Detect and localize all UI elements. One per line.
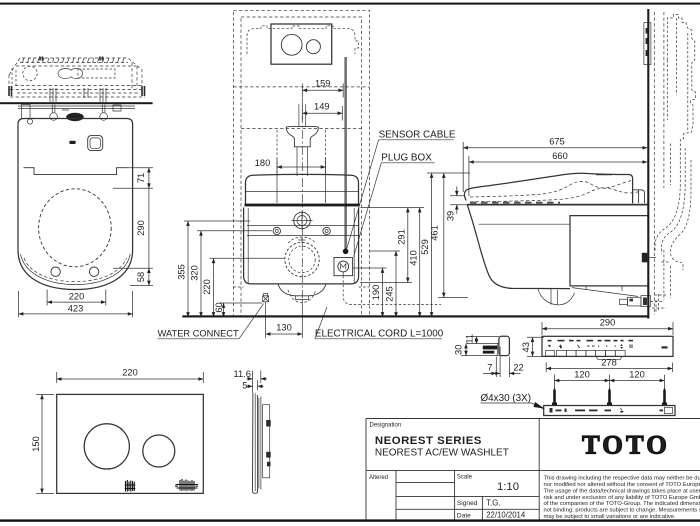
svg-text:Signed: Signed (457, 500, 478, 507)
svg-text:ELECTRICAL CORD L=1000: ELECTRICAL CORD L=1000 (315, 329, 444, 340)
svg-text:290: 290 (600, 318, 616, 328)
svg-text:180: 180 (255, 158, 271, 168)
svg-text:PLUG BOX: PLUG BOX (381, 152, 432, 163)
svg-text:of the companies of the TOTO-G: of the companies of the TOTO-Group. The … (544, 501, 700, 507)
svg-text:nor modified nor altered witho: nor modified nor altered without the con… (544, 482, 700, 488)
svg-text:220: 220 (122, 368, 138, 378)
svg-text:423: 423 (68, 303, 84, 313)
svg-text:22/10/2014: 22/10/2014 (486, 511, 526, 520)
svg-text:TOTO: TOTO (582, 430, 670, 460)
svg-text:60: 60 (214, 302, 224, 312)
svg-text:The usage of the data/technica: The usage of the data/technical drawings… (544, 488, 700, 494)
svg-text:5: 5 (242, 381, 247, 391)
svg-text:Altered: Altered (369, 475, 388, 481)
svg-text:58: 58 (136, 272, 146, 282)
svg-text:11: 11 (464, 334, 474, 344)
svg-text:43: 43 (521, 342, 531, 352)
svg-text:120: 120 (574, 370, 590, 380)
svg-text:Designation: Designation (370, 423, 402, 429)
svg-text:150: 150 (31, 436, 41, 452)
svg-text:Date: Date (457, 512, 471, 519)
svg-text:not binding; products are subj: not binding; products are subject to cha… (544, 508, 700, 514)
svg-text:Scale: Scale (457, 474, 473, 480)
svg-text:190: 190 (371, 285, 381, 301)
svg-text:461: 461 (430, 225, 440, 241)
svg-text:30: 30 (454, 345, 464, 355)
svg-text:410: 410 (408, 250, 418, 266)
svg-text:220: 220 (69, 291, 85, 301)
svg-text:71: 71 (136, 173, 146, 183)
svg-text:22: 22 (513, 363, 523, 373)
svg-text:NEOREST SERIES: NEOREST SERIES (375, 435, 482, 447)
svg-text:660: 660 (552, 151, 568, 161)
svg-text:Ø4x30 (3X): Ø4x30 (3X) (481, 393, 532, 404)
svg-text:245: 245 (385, 286, 395, 302)
svg-text:This drawing including the res: This drawing including the respective da… (544, 476, 700, 482)
svg-text:WATER CONNECT: WATER CONNECT (158, 329, 239, 339)
svg-text:675: 675 (549, 137, 565, 147)
svg-text:1:10: 1:10 (497, 481, 519, 493)
svg-text:159: 159 (315, 79, 331, 89)
svg-text:291: 291 (396, 229, 406, 245)
svg-text:11.6: 11.6 (234, 369, 251, 379)
svg-text:risk and under exclusion of an: risk and under exclusion of any liabilit… (544, 495, 700, 501)
svg-text:SENSOR CABLE: SENSOR CABLE (379, 130, 456, 141)
svg-text:7: 7 (487, 363, 492, 373)
svg-text:120: 120 (629, 370, 645, 380)
svg-text:278: 278 (601, 358, 617, 368)
svg-text:355: 355 (177, 264, 187, 280)
svg-text:220: 220 (202, 279, 212, 295)
svg-text:NEOREST AC/EW WASHLET: NEOREST AC/EW WASHLET (375, 448, 509, 459)
svg-text:T.G.: T.G. (486, 499, 500, 508)
svg-text:130: 130 (276, 323, 292, 333)
svg-text:320: 320 (190, 265, 200, 281)
svg-text:290: 290 (136, 220, 146, 236)
svg-text:39: 39 (445, 211, 455, 221)
svg-text:149: 149 (314, 102, 330, 112)
svg-text:may be subject to small variat: may be subject to small variations or ar… (544, 514, 677, 520)
